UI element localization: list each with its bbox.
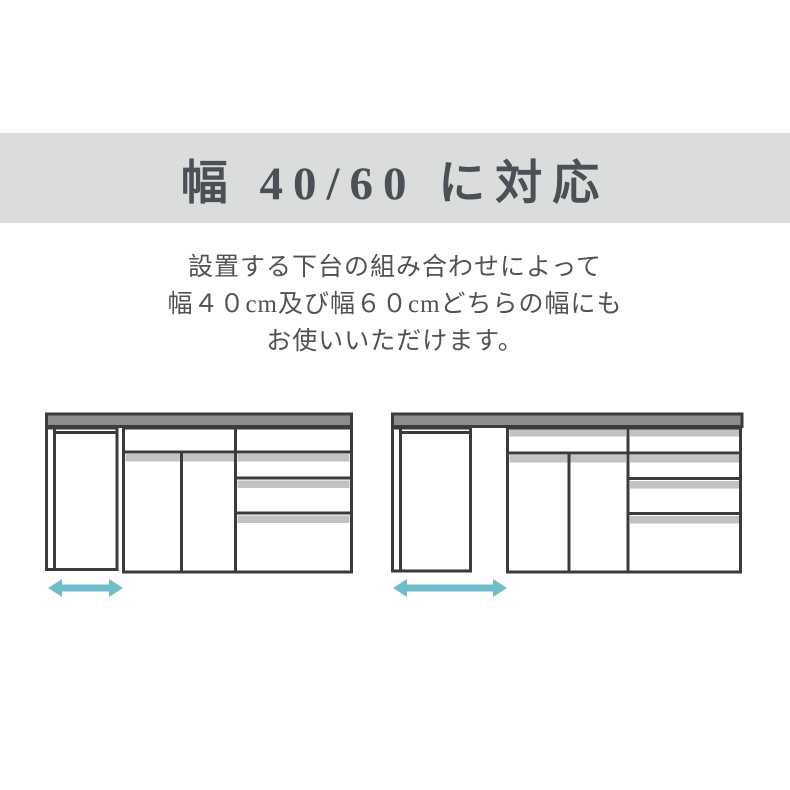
drawer-top-strip bbox=[630, 516, 739, 524]
diagram-width-60: 60 幅 bbox=[391, 412, 745, 602]
counter-top bbox=[393, 414, 743, 427]
shelf-top-strip bbox=[510, 430, 627, 437]
width-arrow-icon bbox=[48, 579, 123, 597]
description-line-2: 幅４０cm及び幅６０cmどちらの幅にも bbox=[0, 286, 790, 323]
drawer-top-strip bbox=[630, 481, 739, 489]
drawer-top-strip bbox=[630, 455, 739, 463]
tall-cabinet-60 bbox=[393, 428, 471, 571]
page-title: 幅 40/60 に対応 bbox=[181, 144, 610, 213]
title-banner: 幅 40/60 に対応 bbox=[0, 133, 790, 223]
drawer-top-strip bbox=[238, 454, 350, 462]
base-cabinet bbox=[508, 428, 741, 572]
description-line-3: お使いいただけます。 bbox=[0, 323, 790, 360]
cabinet-drawing-40 bbox=[45, 412, 355, 602]
width-arrow-icon bbox=[393, 579, 507, 597]
drawer-top-strip bbox=[238, 481, 350, 489]
door-top-strip bbox=[126, 454, 235, 462]
cabinet-drawing-60 bbox=[391, 412, 745, 602]
diagram-width-40: 40 幅 bbox=[45, 412, 355, 602]
counter-top bbox=[47, 414, 352, 427]
page: 幅 40/60 に対応 設置する下台の組み合わせによって 幅４０cm及び幅６０c… bbox=[0, 0, 790, 790]
base-cabinet bbox=[124, 428, 352, 572]
shelf-top-strip bbox=[630, 430, 739, 437]
drawer-top-strip bbox=[238, 516, 350, 524]
tall-cabinet-40 bbox=[47, 428, 118, 570]
description-line-1: 設置する下台の組み合わせによって bbox=[0, 249, 790, 286]
description: 設置する下台の組み合わせによって 幅４０cm及び幅６０cmどちらの幅にも お使い… bbox=[0, 249, 790, 360]
